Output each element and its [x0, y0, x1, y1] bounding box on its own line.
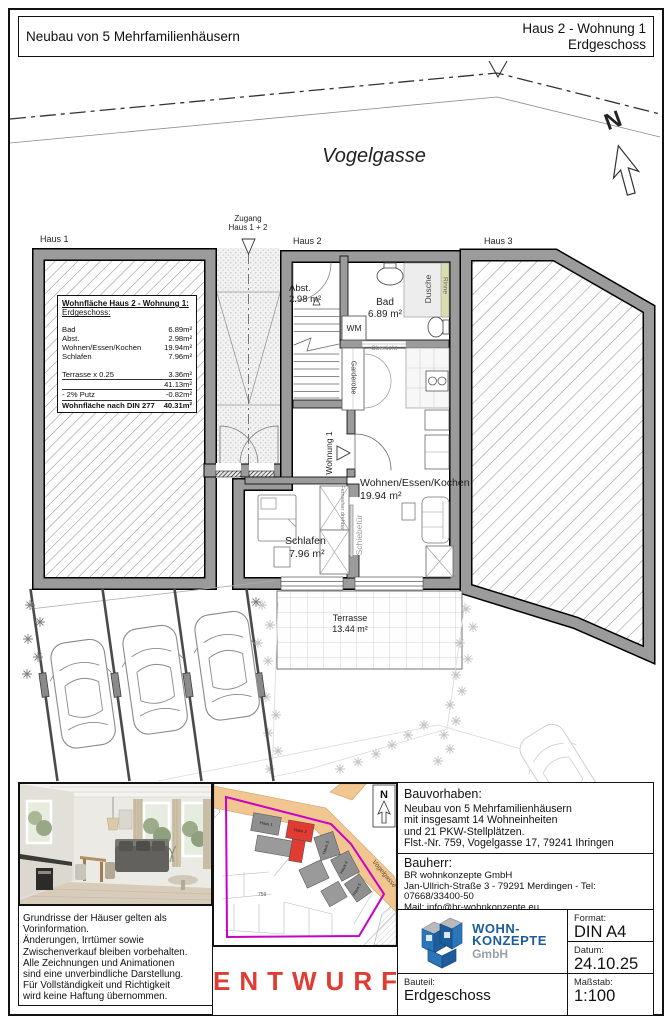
area-table-subtitle: Erdgeschoss:: [62, 308, 192, 317]
dusche-label: Dusche: [423, 269, 433, 309]
logo-cube-icon: [418, 915, 466, 969]
format-label: Format:: [574, 913, 647, 923]
bauteil-label: Bauteil:: [404, 977, 561, 987]
disclaimer-line: Für Vollständigkeit und Richtigkeit: [23, 980, 209, 991]
street-boundary-lines: [10, 61, 660, 143]
entrance-note-line1: Zugang: [208, 214, 288, 223]
room-wohnen-area: 19.94 m²: [360, 490, 401, 502]
bauvorhaben-panel: Bauvorhaben: Neubau von 5 Mehrfamilienhä…: [397, 782, 654, 854]
street-name-label: Vogelgasse: [304, 145, 444, 168]
bauvorhaben-label: Bauvorhaben:: [404, 787, 647, 801]
disclaimer-line: wird keine Haftung übernommen.: [23, 991, 209, 1002]
title-bar: Neubau von 5 Mehrfamilienhäusern Haus 2 …: [18, 16, 654, 57]
datum-value: 24.10.25: [574, 955, 647, 974]
schiebetuer-label: Schiebetür: [354, 495, 364, 575]
format-value: DIN A4: [574, 923, 647, 942]
room-bad-name: Bad: [365, 297, 405, 308]
entrance-corridor: [217, 239, 280, 474]
table-row: Abst.2.98m²: [62, 334, 192, 343]
site-north-arrow: N: [373, 785, 395, 827]
north-arrow: [606, 142, 644, 197]
svg-text:N: N: [380, 789, 388, 801]
bauherr-line: BR wohnkonzepte GmbH: [404, 871, 647, 882]
watermark-text: ENTWURF: [204, 966, 406, 997]
logo-wordmark: WOHN- KONZEPTE GmbH: [472, 923, 547, 961]
site-plan: Haus 1 Haus 2 Haus 3 Haus 4 Haus 5 759 V…: [212, 782, 398, 947]
wm-label: WM: [342, 323, 366, 333]
corridor-doors: [204, 463, 293, 478]
garderobe-label: Garderobe: [350, 348, 357, 408]
table-row-total: Wohnfläche nach DIN 27740.31m²: [62, 401, 192, 410]
faint-car: [512, 717, 610, 782]
plan-sheet: Neubau von 5 Mehrfamilienhäusern Haus 2 …: [0, 0, 672, 1024]
room-abst-area: 2.98 m²: [289, 294, 321, 305]
disclaimer-line: Alle Zeichnungen und Animationen: [23, 958, 209, 969]
massstab-label: Maßstab:: [574, 977, 647, 987]
fernseher-label: Fernseher drehbar: [339, 468, 345, 548]
living-area-table: Wohnfläche Haus 2 - Wohnung 1: Erdgescho…: [57, 295, 197, 413]
table-row-putz: - 2% Putz-0.82m²: [62, 390, 192, 400]
project-title: Neubau von 5 Mehrfamilienhäusern: [26, 29, 240, 44]
disclaimer-line: Änderungen, Irrtümer sowie: [23, 935, 209, 946]
interior-photo: [18, 782, 213, 906]
disclaimer-panel: Grundrisse der Häuser gelten als Vorinfo…: [18, 905, 213, 1006]
logo-line2: KONZEPTE: [472, 935, 547, 948]
table-row: Wohnen/Essen/Kochen19.94m²: [62, 343, 192, 352]
massstab-value: 1:100: [574, 987, 647, 1006]
room-schlafen-area: 7.96 m²: [289, 548, 325, 560]
room-bad-area: 6.89 m²: [365, 309, 405, 320]
room-schlafen-name: Schlafen: [285, 535, 326, 547]
room-terrasse-area: 13.44 m²: [320, 624, 380, 634]
table-row-terrace: Terrasse x 0.253.36m²: [62, 370, 192, 380]
area-table-title: Wohnfläche Haus 2 - Wohnung 1:: [62, 299, 192, 308]
parked-cars: [45, 609, 265, 751]
datum-field: Datum: 24.10.25: [567, 941, 654, 974]
room-wohnen-name: Wohnen/Essen/Kochen: [360, 477, 470, 489]
sheet-title-line1: Haus 2 - Wohnung 1: [522, 21, 646, 37]
building-haus3: [466, 255, 649, 655]
sheet-title-line2: Erdgeschoss: [522, 37, 646, 53]
site-plan-svg: Haus 1 Haus 2 Haus 3 Haus 4 Haus 5 759 V…: [214, 784, 396, 945]
disclaimer-line: Zwischenverkauf bleiben vorbehalten.: [23, 947, 209, 958]
room-abst-name: Abst.: [289, 283, 311, 294]
site-parcel-number: 759: [258, 892, 267, 898]
wohnung1-label: Wohnung 1: [324, 423, 334, 483]
haus1-label: Haus 1: [40, 234, 69, 244]
bauherr-label: Bauherr:: [404, 856, 647, 870]
entrance-note-line2: Haus 1 + 2: [208, 223, 288, 232]
floor-plan-drawing: Vogelgasse N Haus 1 Haus 2 Haus 3 Zugang…: [10, 57, 662, 782]
bauherr-line: Jan-Ullrich-Straße 3 - 79291 Merdingen -…: [404, 882, 647, 903]
haus2-label: Haus 2: [293, 236, 322, 246]
format-field: Format: DIN A4: [567, 909, 654, 942]
bauvorhaben-line: Flst.-Nr. 759, Vogelgasse 17, 79241 Ihri…: [404, 838, 647, 849]
room-terrasse-name: Terrasse: [320, 613, 380, 623]
datum-label: Datum:: [574, 945, 647, 955]
rinne-label: Rinne: [442, 271, 449, 301]
bauherr-panel: Bauherr: BR wohnkonzepte GmbH Jan-Ullric…: [397, 853, 654, 910]
table-row: Schlafen7.96m²: [62, 352, 192, 361]
table-row-subtotal: 41.13m²: [62, 380, 192, 390]
table-row: Bad6.89m²: [62, 325, 192, 334]
company-logo: WOHN- KONZEPTE GmbH: [397, 909, 568, 974]
disclaimer-line: sind eine unverbindliche Darstellung.: [23, 969, 209, 980]
disclaimer-line: Grundrisse der Häuser gelten als Vorinfo…: [23, 913, 209, 935]
oberlicht-label: Oberlicht: [362, 345, 406, 352]
haus3-label: Haus 3: [484, 236, 513, 246]
massstab-field: Maßstab: 1:100: [567, 973, 654, 1016]
bauteil-field: Bauteil: Erdgeschoss: [397, 973, 568, 1016]
bauteil-value: Erdgeschoss: [404, 987, 561, 1004]
interior-photo-art: [20, 784, 211, 904]
entwurf-stamp: ENTWURF: [212, 946, 398, 1016]
logo-line3: GmbH: [472, 948, 547, 961]
sheet-title: Haus 2 - Wohnung 1 Erdgeschoss: [522, 21, 646, 52]
